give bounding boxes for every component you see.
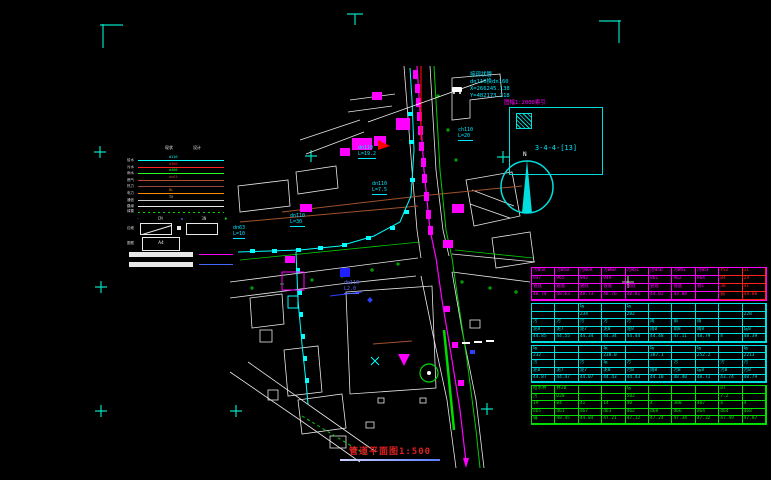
table-cell: 铺: [719, 292, 742, 300]
table-cell: 管底: [626, 284, 649, 292]
table-cell: [649, 304, 672, 312]
table-cell: 47.34: [672, 416, 695, 424]
table-cell: 4: [743, 401, 766, 409]
table-cell: 87: [719, 386, 742, 394]
table-cell: 污W5E: [672, 268, 695, 276]
sewer-pipeline-magenta: [282, 66, 469, 468]
table-cell: 48.39: [743, 334, 766, 342]
table-cell: 41: [579, 401, 602, 409]
hedge-dotted-line: [138, 212, 224, 213]
table-row: 坛坛坛坛坛: [532, 346, 766, 353]
table-cell: [602, 312, 625, 320]
table-cell: 泥8: [532, 327, 555, 335]
table-cell: 污: [743, 360, 766, 367]
annotation-line-2: dn110换dn160: [470, 79, 560, 86]
table-cell: 2213: [743, 353, 766, 360]
green-utility-lines: [240, 66, 533, 468]
legend-line-rows: 给水d110污水d300雨水d400燃气dn63热力电力DL通信TX路缘: [127, 157, 227, 210]
table-cell: 44.43: [626, 375, 649, 382]
table-row: 44.8544.5544.3444.3444.4444.4847.1148.79…: [532, 334, 766, 342]
table-cell: 污W5F: [696, 268, 719, 276]
table-cell: [719, 319, 742, 327]
table-cell: 962: [672, 276, 695, 284]
table-group: 坛坛234282228污污污污污雨雨雨泥8泥7泥7泥8泥8雨8雨8雨8坛844.…: [531, 303, 767, 343]
table-cell: 坛: [626, 304, 649, 312]
legend-row: 路缘: [127, 203, 227, 210]
table-cell: 40: [626, 401, 649, 409]
table-cell: [696, 386, 719, 394]
table-cell: 污: [579, 319, 602, 327]
table-cell: 污W6B: [602, 268, 625, 276]
table-cell: [672, 394, 695, 402]
table-cell: D20: [555, 394, 578, 402]
table-cell: [579, 346, 602, 353]
table-cell: [555, 346, 578, 353]
table-cell: [672, 386, 695, 394]
legend-symbol: CM: [158, 216, 163, 221]
table-cell: 252.2: [696, 353, 719, 360]
table-cell: [579, 353, 602, 360]
annotation-line-1: 接现状管: [470, 72, 560, 79]
table-cell: 24: [743, 276, 766, 284]
table-cell: 坛: [532, 346, 555, 353]
table-cell: 44.43: [602, 375, 625, 382]
table-cell: [555, 360, 578, 367]
table-cell: 雨8: [649, 368, 672, 375]
table-cell: 44.34: [579, 334, 602, 342]
legend-row: 热力: [127, 183, 227, 190]
table-cell: 48.40: [672, 375, 695, 382]
table-cell: d64: [696, 409, 719, 417]
table-cell: 38: [719, 284, 742, 292]
legend-frame-row: 图框 A4: [127, 237, 235, 250]
table-row: 污D205027.2: [532, 394, 766, 402]
table-cell: 雨: [672, 319, 695, 327]
sheet-index-box: 图幅1:2000索引 3-4-4-[13]: [509, 107, 603, 175]
empty-box-symbol: [186, 223, 218, 235]
table-cell: [602, 394, 625, 402]
table-row: 1984411440438048744: [532, 401, 766, 409]
table-cell: 965: [555, 276, 578, 284]
table-cell: 污: [579, 360, 602, 367]
legend-header-existing: 现状: [165, 146, 173, 150]
table-cell: 污: [602, 319, 625, 327]
table-cell: 污W5A: [532, 268, 555, 276]
table-cell: [672, 353, 695, 360]
table-cell: [649, 386, 672, 394]
table-cell: 雨8: [672, 327, 695, 335]
table-cell: [555, 312, 578, 320]
table-cell: 44.84: [579, 416, 602, 424]
table-cell: 4: [649, 401, 672, 409]
table-cell: [696, 292, 719, 300]
table-cell: 雨8: [649, 327, 672, 335]
table-cell: 44.82: [649, 292, 672, 300]
legend-bar-1: [129, 252, 193, 257]
pipe-label-dn110-19: dn110L=19.2: [358, 146, 376, 159]
table-row: 234282228: [532, 312, 766, 320]
table-cell: [719, 304, 742, 312]
table-row: 污污污污污雨雨雨: [532, 319, 766, 327]
legend-row: 电力DL: [127, 190, 227, 197]
table-cell: 泥7: [555, 327, 578, 335]
table-cell: 污: [672, 360, 695, 367]
table-cell: 污: [719, 360, 742, 367]
table-cell: 47.11: [672, 334, 695, 342]
table-cell: 43.84: [672, 292, 695, 300]
table-cell: [626, 353, 649, 360]
table-cell: 47.87: [743, 416, 766, 424]
table-cell: 48.73: [579, 292, 602, 300]
table-cell: 雨: [696, 319, 719, 327]
table-cell: 污: [626, 319, 649, 327]
table-cell: [743, 386, 766, 394]
table-cell: 污: [532, 394, 555, 402]
legend-symbols-row: —CM◆3N♣: [137, 216, 227, 221]
table-cell: 964: [696, 276, 719, 284]
table-cell: d64: [719, 409, 742, 417]
table-row: 污W5A污W5B污W6A污W6B污W5C污W5D污W5E污W5FYS2J1: [532, 268, 766, 276]
table-cell: 44.44: [626, 334, 649, 342]
legend-magenta-line: [199, 254, 233, 255]
legend-row: 燃气dn63: [127, 177, 227, 184]
table-cell: 泥8: [626, 327, 649, 335]
table-row: 9479659429499619629648424: [532, 276, 766, 284]
table-cell: 泥8: [602, 327, 625, 335]
table-cell: 949: [602, 276, 625, 284]
table-cell: [579, 394, 602, 402]
table-cell: 坛8: [743, 327, 766, 335]
table-cell: 48.79: [743, 375, 766, 382]
table-cell: 管L: [696, 284, 719, 292]
square-dot-symbol: [177, 226, 181, 230]
table-cell: d61: [555, 409, 578, 417]
index-box-caption: 图幅1:2000索引: [504, 98, 546, 106]
table-cell: 48.63: [555, 292, 578, 300]
table-row: 管底管底管底管底管底管底管底管L3841: [532, 284, 766, 292]
table-cell: 44.10: [649, 375, 672, 382]
pipe-label-dn110-75: dn110L=7.5: [372, 182, 387, 195]
table-cell: 管底: [672, 284, 695, 292]
table-cell: [626, 346, 649, 353]
table-row: 泥8泥7泥7泥8污8雨8污8坛8污8污8: [532, 368, 766, 375]
table-cell: 铺: [532, 416, 555, 424]
table-group: 污W5A污W5B污W6A污W6B污W5C污W5D污W5E污W5FYS2J1947…: [531, 267, 767, 301]
well-center-dot: [427, 371, 431, 375]
drawing-title: 管道平面图1:500: [340, 444, 440, 461]
table-cell: 泥8: [532, 368, 555, 375]
table-cell: 84: [719, 276, 742, 284]
table-cell: 387.1: [649, 353, 672, 360]
table-cell: 坛: [626, 386, 649, 394]
table-cell: 泥7: [579, 327, 602, 335]
table-cell: 44.87: [532, 375, 555, 382]
table-cell: 泥8: [602, 368, 625, 375]
table-cell: 238.0: [602, 353, 625, 360]
table-cell: 污8: [626, 368, 649, 375]
table-cell: [719, 346, 742, 353]
table-cell: 48.81: [626, 292, 649, 300]
table-cell: 234: [579, 312, 602, 320]
table-cell: 47.12: [626, 416, 649, 424]
table-group: 坛坛坛坛坛232238.0387.1252.22213污污坛污污污污泥8泥7泥7…: [531, 345, 767, 383]
table-cell: YS2: [719, 268, 742, 276]
table-cell: d67: [579, 409, 602, 417]
pipe-label-dn63: dn63L=10: [233, 226, 245, 239]
table-row: 泥8泥7泥7泥8泥8雨8雨8雨8坛8: [532, 327, 766, 335]
table-cell: 44.80: [743, 292, 766, 300]
table-cell: 管底: [649, 284, 672, 292]
table-cell: [649, 394, 672, 402]
table-cell: [555, 353, 578, 360]
legend-hedge-label: 绿篱: [127, 209, 134, 214]
table-cell: 48.74: [532, 292, 555, 300]
table-cell: 7.2: [719, 394, 742, 402]
table-cell: 44.07: [579, 375, 602, 382]
table-row: 232238.0387.1252.22213: [532, 353, 766, 360]
table-cell: 232: [532, 353, 555, 360]
table-cell: 48.71: [696, 375, 719, 382]
table-row: 给水井井20坛87: [532, 386, 766, 394]
table-row: 48.7448.6348.7348.7648.8144.8243.84铺44.8…: [532, 292, 766, 300]
table-cell: 坛: [579, 304, 602, 312]
building-outlines: [238, 74, 534, 448]
sheet-number: 3-4-4-[13]: [510, 144, 602, 152]
table-cell: 坛: [743, 346, 766, 353]
pipe-label-ch110: ch110L=20: [458, 128, 473, 141]
table-cell: d63: [602, 409, 625, 417]
table-cell: [696, 304, 719, 312]
hatch-square-icon: [516, 113, 532, 129]
table-cell: [579, 386, 602, 394]
table-cell: [649, 312, 672, 320]
table-row: 坛坛: [532, 304, 766, 312]
frame-symbol: A4: [142, 237, 180, 251]
table-cell: [672, 312, 695, 320]
legend-blue-line: [199, 264, 233, 265]
legend-header-design: 设计: [193, 146, 201, 150]
water-pipeline-cyan: [238, 68, 415, 404]
table-cell: 污: [555, 319, 578, 327]
legend-bar-2: [129, 262, 193, 267]
table-cell: 41: [743, 284, 766, 292]
table-cell: 污W5B: [555, 268, 578, 276]
table-cell: 961: [649, 276, 672, 284]
table-cell: 污: [626, 360, 649, 367]
table-cell: 947: [532, 276, 555, 284]
table-cell: ≡: [719, 334, 742, 342]
table-cell: 44.85: [532, 334, 555, 342]
table-row: 铺48.4544.8447.2147.1247.2447.3447.3247.4…: [532, 416, 766, 424]
table-cell: d62: [626, 409, 649, 417]
table-cell: 坛: [602, 346, 625, 353]
table-cell: 污: [532, 319, 555, 327]
legend-row: 通信TX: [127, 197, 227, 204]
table-cell: 487: [696, 401, 719, 409]
table-cell: 污W6A: [579, 268, 602, 276]
table-cell: 4: [719, 401, 742, 409]
table-cell: 坛: [649, 346, 672, 353]
table-cell: 污8: [719, 368, 742, 375]
table-cell: 19: [532, 401, 555, 409]
table-cell: [696, 360, 719, 367]
table-cell: [672, 304, 695, 312]
table-cell: [602, 386, 625, 394]
table-cell: d68: [649, 409, 672, 417]
table-cell: [649, 360, 672, 367]
pipe-label-dn110-30: dn110L=30: [290, 214, 305, 227]
table-row: 污污坛污污污污: [532, 360, 766, 367]
table-cell: 44.47: [555, 375, 578, 382]
table-cell: 污8: [672, 368, 695, 375]
table-cell: 502: [626, 394, 649, 402]
table-cell: 雨8: [696, 327, 719, 335]
table-cell: 47.32: [696, 416, 719, 424]
table-cell: J1: [743, 268, 766, 276]
legend-symbol: ◆: [181, 216, 183, 221]
table-cell: 管底: [532, 284, 555, 292]
pipe-label-dn110-blue: dn110L2.0: [344, 281, 359, 294]
table-cell: 污W5C: [626, 268, 649, 276]
table-cell: 84: [555, 401, 578, 409]
connection-annotation: 接现状管 dn110换dn160 X=266245.138 Y=482173.2…: [470, 72, 560, 100]
table-row: d65d61d67d63d62d68d66d64d64d68: [532, 409, 766, 417]
table-cell: 44.48: [649, 334, 672, 342]
table-cell: 坛: [602, 360, 625, 367]
slope-symbol: [140, 223, 172, 235]
table-cell: [719, 353, 742, 360]
table-cell: 282: [626, 312, 649, 320]
table-cell: 47.21: [602, 416, 625, 424]
annotation-line-3: X=266245.138: [470, 86, 560, 93]
well-data-table: 污W5A污W5B污W6A污W6B污W5C污W5D污W5E污W5FYS2J1947…: [531, 267, 767, 427]
table-cell: [719, 327, 742, 335]
table-cell: [696, 394, 719, 402]
table-cell: [696, 312, 719, 320]
table-cell: 雨: [649, 319, 672, 327]
table-cell: [672, 346, 695, 353]
table-cell: 942: [579, 276, 602, 284]
table-cell: 48.45: [555, 416, 578, 424]
table-cell: 污W5D: [649, 268, 672, 276]
legend-panel: 现状 设计 给水d110污水d300雨水d400燃气dn63热力电力DL通信TX…: [127, 146, 235, 268]
table-cell: 污: [532, 360, 555, 367]
table-cell: [743, 394, 766, 402]
table-group: 给水井井20坛87污D205027.21984411440438048744d6…: [531, 385, 767, 425]
table-cell: 泥7: [555, 368, 578, 375]
table-cell: [555, 304, 578, 312]
table-cell: 380: [672, 401, 695, 409]
table-cell: 43.74: [719, 375, 742, 382]
table-cell: 泥7: [579, 368, 602, 375]
table-cell: 坛: [696, 346, 719, 353]
table-cell: 井20: [555, 386, 578, 394]
table-cell: d66: [672, 409, 695, 417]
table-cell: d65: [532, 409, 555, 417]
table-cell: 48.76: [602, 292, 625, 300]
legend-frame-label: 图框: [127, 241, 134, 246]
road-lines: [230, 66, 535, 468]
table-cell: 47.24: [649, 416, 672, 424]
table-cell: [626, 276, 649, 284]
table-cell: 管底: [555, 284, 578, 292]
legend-box-row-label: 边坡: [127, 226, 134, 231]
table-cell: d68: [743, 409, 766, 417]
table-cell: 管底: [602, 284, 625, 292]
table-cell: 污8: [743, 368, 766, 375]
cad-drawing-sheet: N 现状 设计 给水d110污水d300雨水d400燃气dn63热力电力DL通信…: [0, 0, 771, 480]
table-cell: [743, 304, 766, 312]
table-cell: [719, 312, 742, 320]
table-cell: 14: [602, 401, 625, 409]
table-cell: 44.34: [602, 334, 625, 342]
table-cell: 管底: [579, 284, 602, 292]
table-cell: [532, 312, 555, 320]
legend-symbol: ♣: [225, 216, 227, 221]
table-cell: [532, 304, 555, 312]
legend-box-row: 边坡: [127, 223, 235, 235]
table-cell: 坛8: [696, 368, 719, 375]
table-cell: 228: [743, 312, 766, 320]
table-cell: 48.79: [696, 334, 719, 342]
table-cell: [743, 319, 766, 327]
table-row: 44.8744.4744.0744.4344.4344.1048.4048.71…: [532, 375, 766, 382]
table-cell: 47.49: [719, 416, 742, 424]
table-cell: 给水井: [532, 386, 555, 394]
legend-symbol: 3N: [201, 216, 206, 221]
table-cell: [602, 304, 625, 312]
legend-symbol: —: [137, 216, 139, 221]
table-cell: 44.55: [555, 334, 578, 342]
